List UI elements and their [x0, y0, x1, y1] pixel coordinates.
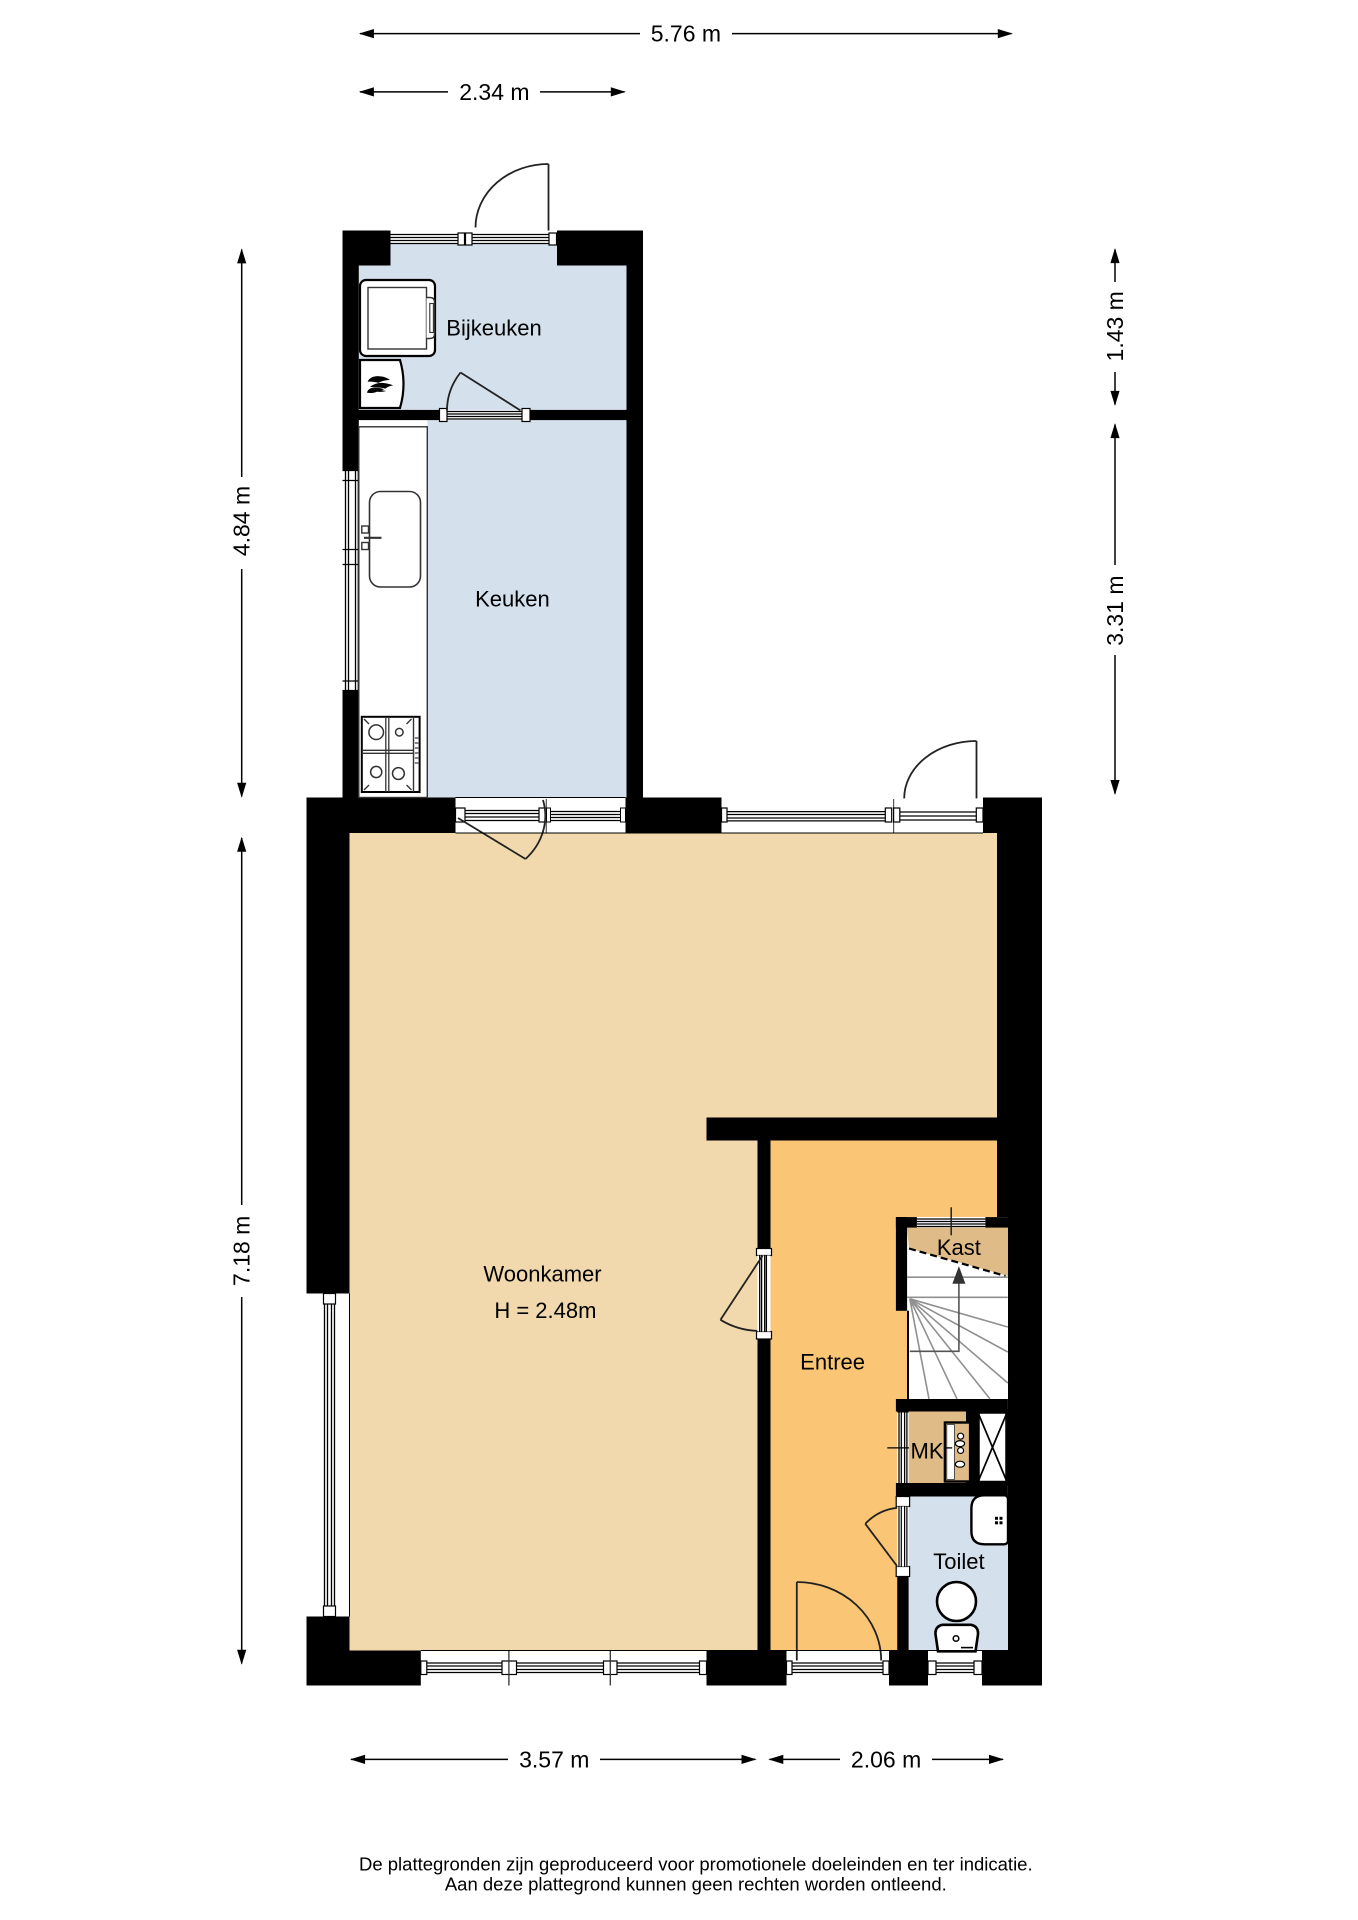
svg-text:H = 2.48m: H = 2.48m [494, 1298, 596, 1323]
svg-text:Woonkamer: Woonkamer [483, 1262, 601, 1287]
svg-text:Kast: Kast [937, 1235, 981, 1260]
svg-text:5.76 m: 5.76 m [651, 21, 721, 47]
svg-text:Keuken: Keuken [475, 587, 550, 612]
svg-text:3.57 m: 3.57 m [519, 1746, 589, 1772]
svg-text:De plattegronden zijn geproduc: De plattegronden zijn geproduceerd voor … [359, 1854, 1033, 1875]
svg-text:Bijkeuken: Bijkeuken [446, 316, 541, 341]
svg-text:3.31 m: 3.31 m [1102, 575, 1128, 645]
svg-text:MK: MK [911, 1439, 944, 1464]
svg-text:4.84 m: 4.84 m [229, 486, 255, 556]
svg-text:Toilet: Toilet [933, 1549, 984, 1574]
svg-text:2.34 m: 2.34 m [459, 79, 529, 105]
svg-text:Entree: Entree [800, 1350, 865, 1375]
svg-text:2.06 m: 2.06 m [851, 1746, 921, 1772]
svg-text:7.18 m: 7.18 m [229, 1216, 255, 1286]
svg-text:1.43 m: 1.43 m [1102, 291, 1128, 361]
svg-text:Aan deze plattegrond kunnen ge: Aan deze plattegrond kunnen geen rechten… [445, 1874, 947, 1895]
